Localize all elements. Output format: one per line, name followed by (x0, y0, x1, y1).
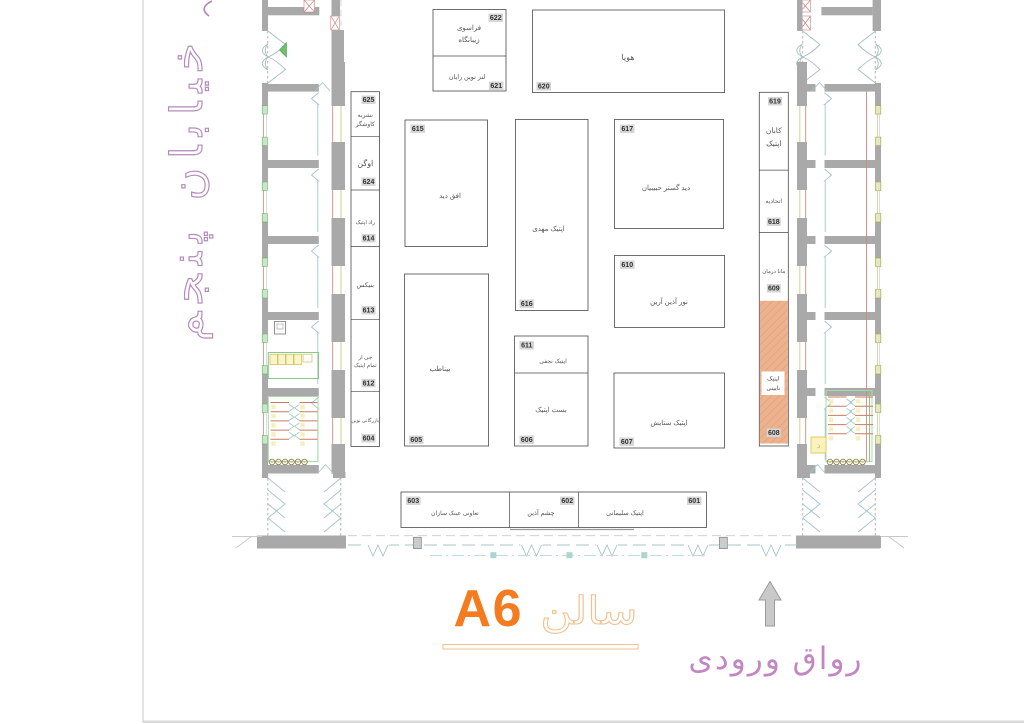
svg-text:نشریه: نشریه (358, 113, 374, 119)
svg-text:603: 603 (407, 498, 419, 505)
svg-text:اتحادیه: اتحادیه (765, 198, 782, 205)
svg-text:بازرگانی نوین: بازرگانی نوین (351, 417, 379, 424)
svg-text:د: د (817, 441, 821, 450)
svg-text:617: 617 (621, 126, 633, 133)
svg-text:مانا درمان: مانا درمان (762, 268, 785, 275)
svg-text:611: 611 (521, 343, 532, 350)
svg-text:اپتیک ستایش: اپتیک ستایش (650, 419, 687, 427)
svg-text:اوگن: اوگن (357, 158, 373, 168)
svg-text:اپتیک مهدی: اپتیک مهدی (532, 225, 565, 233)
svg-text:تمام اپتیک: تمام اپتیک (354, 362, 377, 369)
svg-text:609: 609 (768, 286, 780, 293)
svg-text:دید گستر حبیبیان: دید گستر حبیبیان (642, 183, 690, 192)
svg-text:601: 601 (688, 498, 700, 505)
svg-text:جی ار: جی ار (357, 354, 372, 361)
svg-text:625: 625 (363, 97, 375, 104)
svg-text:خیابان پنجم: خیابان پنجم (163, 43, 213, 341)
svg-text:زیبانگاه: زیبانگاه (458, 35, 479, 44)
svg-text:616: 616 (521, 301, 533, 308)
svg-text:614: 614 (363, 236, 375, 243)
svg-text:تعاونی عینک سازان: تعاونی عینک سازان (431, 510, 479, 517)
svg-text:بنیکس: بنیکس (356, 281, 374, 289)
svg-text:607: 607 (621, 439, 633, 446)
svg-text:621: 621 (490, 83, 502, 90)
svg-text:612: 612 (363, 380, 375, 387)
svg-text:608: 608 (768, 430, 780, 437)
svg-text:نایینی: نایینی (766, 385, 780, 392)
svg-text:اپتیک نجفی: اپتیک نجفی (539, 358, 567, 365)
svg-text:605: 605 (410, 437, 422, 444)
svg-text:610: 610 (621, 262, 633, 269)
svg-text:اپتیک سلیمانی: اپتیک سلیمانی (606, 509, 644, 517)
svg-text:A6: A6 (454, 580, 522, 638)
svg-text:کابان: کابان (766, 126, 782, 135)
svg-text:604: 604 (363, 436, 375, 443)
svg-text:راد اپتیک: راد اپتیک (356, 219, 376, 226)
svg-text:624: 624 (363, 179, 375, 186)
svg-text:619: 619 (769, 99, 781, 106)
svg-text:لنز نوین رایان: لنز نوین رایان (449, 73, 486, 81)
svg-text:606: 606 (521, 437, 533, 444)
svg-text:615: 615 (412, 126, 424, 133)
svg-text:بیناطب: بیناطب (430, 365, 451, 373)
svg-text:اپتیک: اپتیک (766, 139, 781, 148)
svg-text:رواق ورودی: رواق ورودی (689, 641, 862, 677)
svg-text:سالن: سالن (540, 588, 637, 634)
svg-text:618: 618 (768, 219, 780, 226)
svg-text:کاوشگر: کاوشگر (355, 120, 375, 128)
svg-text:602: 602 (561, 498, 573, 505)
svg-text:بست اپتیک: بست اپتیک (535, 406, 566, 414)
svg-text:620: 620 (538, 84, 550, 91)
svg-text:613: 613 (363, 308, 375, 315)
svg-text:اپتیک: اپتیک (767, 376, 780, 383)
svg-text:افق دید: افق دید (439, 192, 461, 200)
svg-text:622: 622 (490, 15, 502, 22)
svg-text:فراسوی: فراسوی (457, 24, 481, 32)
svg-text:هویا: هویا (621, 53, 634, 62)
